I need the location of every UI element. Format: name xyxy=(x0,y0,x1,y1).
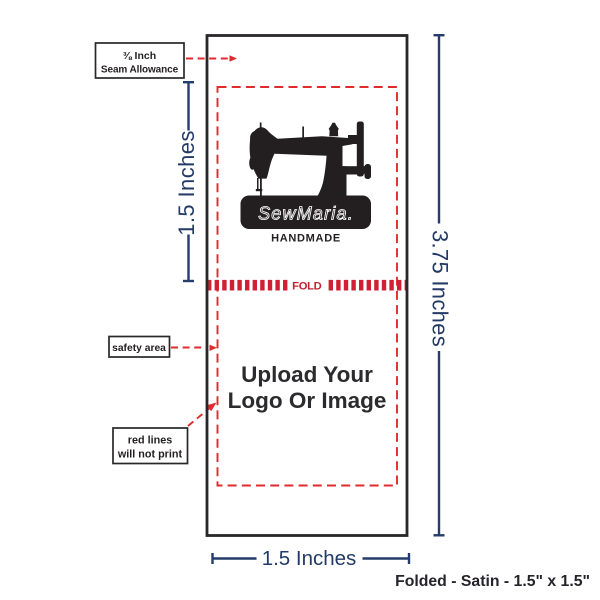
svg-text:3.75 Inches: 3.75 Inches xyxy=(428,230,453,347)
svg-text:red lines: red lines xyxy=(128,435,172,447)
svg-text:safety area: safety area xyxy=(112,343,166,354)
svg-text:1.5 Inches: 1.5 Inches xyxy=(174,130,199,236)
svg-text:SewMaria.: SewMaria. xyxy=(258,204,354,224)
svg-text:1.5 Inches: 1.5 Inches xyxy=(262,547,357,570)
svg-text:Seam Allowance: Seam Allowance xyxy=(101,65,179,76)
svg-text:FOLD: FOLD xyxy=(292,281,321,293)
svg-text:Upload Your: Upload Your xyxy=(241,362,373,387)
svg-text:will not print: will not print xyxy=(117,449,183,461)
svg-text:Logo Or Image: Logo Or Image xyxy=(228,388,387,413)
svg-text:⅜ Inch: ⅜ Inch xyxy=(123,50,156,62)
svg-text:HANDMADE: HANDMADE xyxy=(271,233,341,245)
svg-text:Folded - Satin - 1.5" x 1.5": Folded - Satin - 1.5" x 1.5" xyxy=(395,573,590,590)
